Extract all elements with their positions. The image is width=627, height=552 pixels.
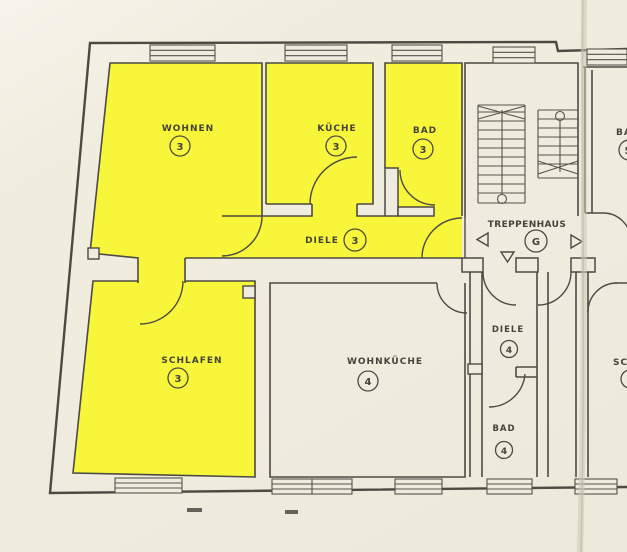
window-top-1 (150, 45, 215, 61)
label-bad4: BAD (492, 424, 515, 434)
triangle-down-icon (501, 252, 514, 262)
label-kueche: KÜCHE (317, 123, 356, 134)
scanned-floorplan-page: WOHNEN 3 KÜCHE 3 BAD 3 DIELE 3 TREPPENHA… (0, 0, 627, 552)
chimney-square-left (88, 248, 99, 259)
wall-stairwell (465, 63, 578, 218)
landing-stub-left (462, 258, 483, 272)
window-top-stairwell (493, 47, 535, 63)
window-bottom-2 (272, 479, 352, 494)
room-fill-schlafen (73, 281, 255, 477)
number-treppenhaus: G (532, 237, 540, 248)
window-bottom-4 (487, 479, 532, 494)
number-diele4: 4 (506, 346, 512, 356)
number-wohnkueche: 4 (365, 377, 372, 388)
door-bad5 (604, 213, 627, 240)
wall-diele4-bad4-separator (516, 367, 537, 377)
triangle-right-icon (571, 235, 582, 248)
number-bad3: 3 (420, 145, 427, 156)
label-diele3: DIELE (305, 236, 339, 246)
window-top-2 (285, 45, 347, 61)
cutoff-mark-1 (187, 508, 202, 512)
window-bottom-1 (115, 478, 182, 493)
page-fold-crease (580, 0, 584, 552)
wall-stub-bad3-bottom (398, 207, 434, 216)
label-wohnen: WOHNEN (162, 124, 214, 134)
label-bad3: BAD (413, 126, 437, 136)
number-diele3: 3 (352, 236, 359, 247)
door-wohnkueche (437, 283, 467, 313)
label-schlafen5-partial: SC (613, 358, 627, 368)
number-kueche: 3 (333, 142, 340, 153)
window-bottom-3 (395, 479, 442, 494)
diele4-stub-left (468, 364, 482, 374)
door-schlafen5 (588, 283, 617, 312)
wall-stub-bad3-left (385, 168, 398, 216)
apartment3-highlight-fills (73, 63, 462, 477)
label-bad5-partial: BA (616, 128, 627, 138)
window-top-3 (392, 45, 442, 61)
door-diele4-bad4 (489, 374, 525, 407)
chimney-square-right (243, 286, 255, 298)
label-treppenhaus: TREPPENHAUS (488, 220, 567, 230)
number-wohnen: 3 (177, 142, 184, 153)
cutoff-mark-2 (285, 510, 298, 514)
number-circle-schlafen5-partial (621, 370, 627, 388)
label-diele4: DIELE (492, 325, 524, 335)
staircase (478, 105, 578, 204)
label-schlafen: SCHLAFEN (161, 356, 222, 366)
cutoff-marks (187, 508, 298, 514)
wall-bad5 (583, 67, 627, 213)
window-top-5 (587, 49, 627, 65)
floorplan-drawing: WOHNEN 3 KÜCHE 3 BAD 3 DIELE 3 TREPPENHA… (0, 0, 627, 552)
landing-stub-mid (516, 258, 538, 272)
number-schlafen: 3 (175, 374, 182, 385)
stair-direction-lines (502, 110, 560, 194)
door-landing-diele4 (483, 272, 516, 305)
door-landing-right (538, 272, 571, 305)
triangle-left-icon (477, 233, 488, 246)
number-bad4: 4 (501, 447, 507, 457)
stair-newel-bottom (498, 195, 507, 204)
label-wohnkueche: WOHNKÜCHE (347, 356, 423, 367)
